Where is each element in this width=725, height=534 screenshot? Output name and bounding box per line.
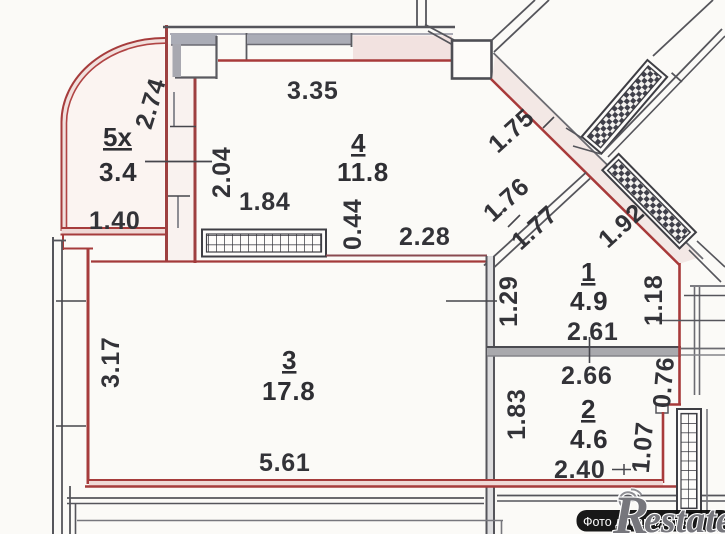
svg-text:2.40: 2.40 xyxy=(554,456,605,484)
svg-text:1.40: 1.40 xyxy=(89,207,140,235)
svg-text:4.6: 4.6 xyxy=(570,424,608,454)
svg-text:0.44: 0.44 xyxy=(339,199,367,250)
svg-text:estate: estate xyxy=(644,499,725,534)
svg-text:1.84: 1.84 xyxy=(239,188,290,216)
svg-text:17.8: 17.8 xyxy=(262,376,315,406)
svg-text:3.35: 3.35 xyxy=(287,77,338,105)
svg-text:1.18: 1.18 xyxy=(640,275,668,326)
svg-text:2.61: 2.61 xyxy=(567,318,618,346)
svg-text:1.29: 1.29 xyxy=(495,276,523,327)
svg-text:2.04: 2.04 xyxy=(208,147,236,198)
svg-text:1.83: 1.83 xyxy=(503,389,531,440)
svg-text:5.61: 5.61 xyxy=(259,449,310,477)
svg-text:1.07: 1.07 xyxy=(627,420,659,474)
svg-text:0.76: 0.76 xyxy=(648,355,680,409)
svg-text:4: 4 xyxy=(351,128,366,158)
svg-text:11.8: 11.8 xyxy=(337,157,389,187)
svg-text:3.17: 3.17 xyxy=(97,337,125,388)
svg-text:2.66: 2.66 xyxy=(561,362,612,390)
svg-text:2.28: 2.28 xyxy=(399,223,450,251)
svg-text:1: 1 xyxy=(581,257,595,287)
svg-text:2: 2 xyxy=(581,394,595,424)
svg-text:3: 3 xyxy=(282,345,296,375)
svg-text:4.9: 4.9 xyxy=(570,286,608,316)
svg-text:3.4: 3.4 xyxy=(99,157,137,187)
svg-text:5х: 5х xyxy=(103,122,132,152)
